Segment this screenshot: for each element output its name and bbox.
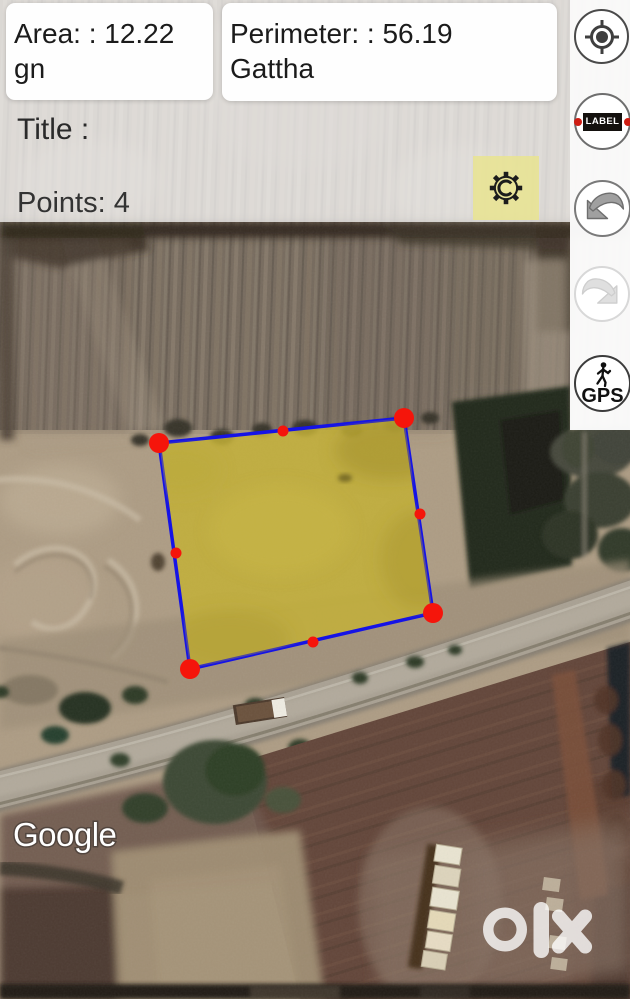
svg-text:Google: Google	[13, 816, 116, 853]
